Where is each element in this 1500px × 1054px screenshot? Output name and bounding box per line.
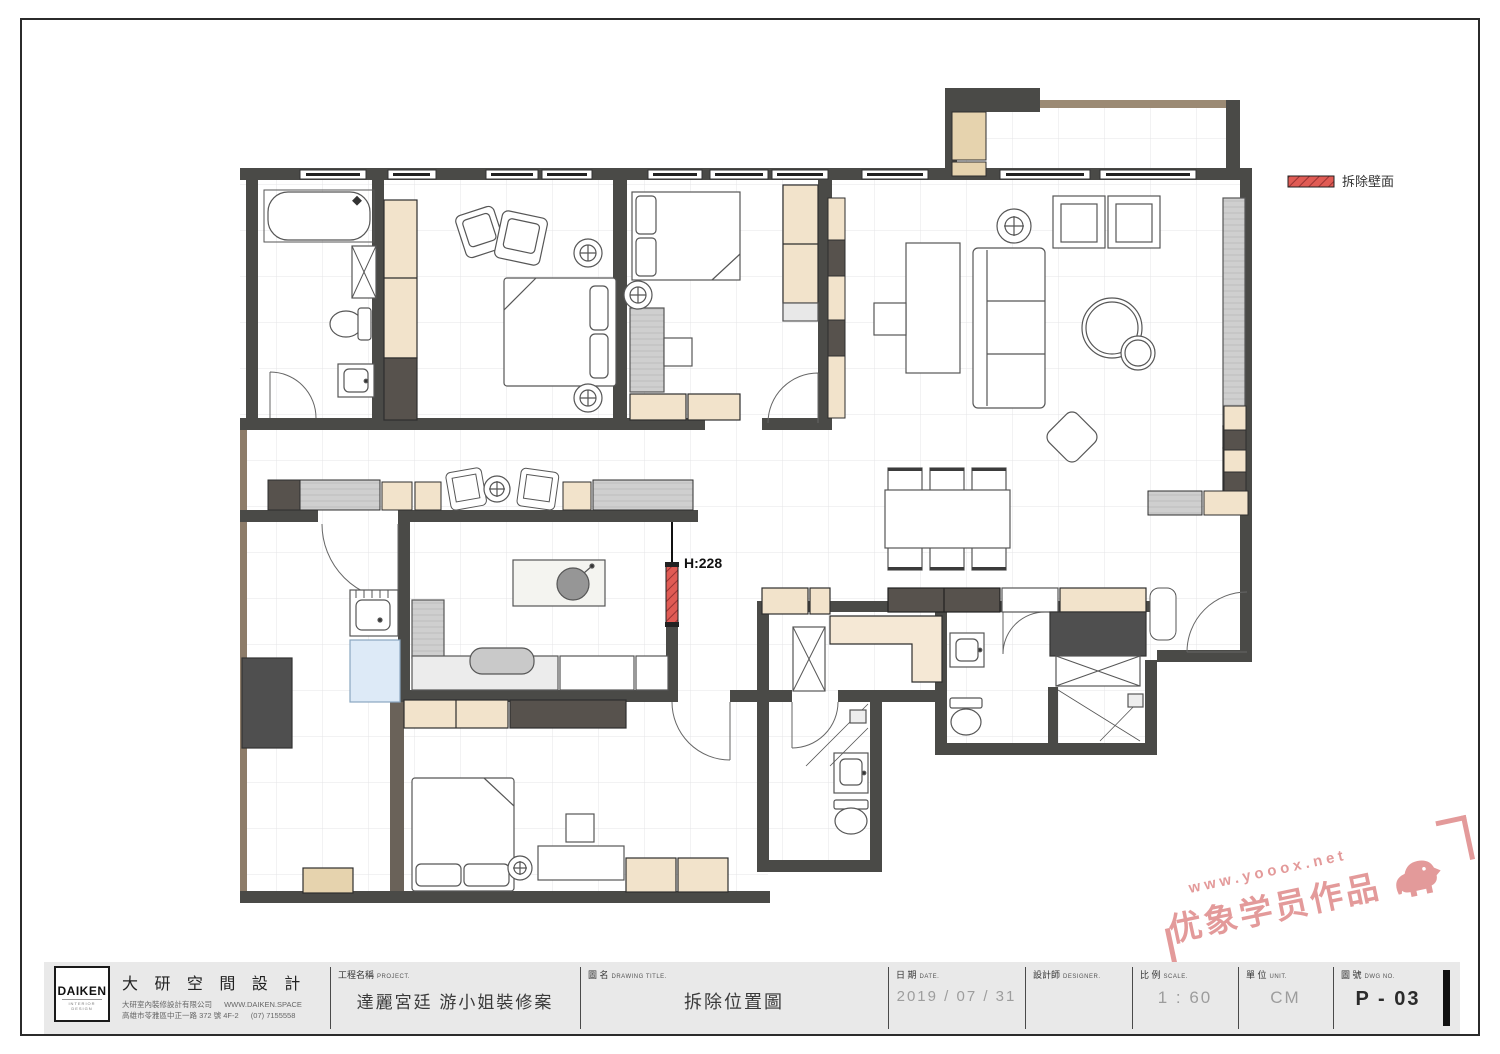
company-logo: DAIKEN INTERIOR DESIGN [54, 966, 110, 1022]
field-scale: 比 例SCALE. 1 : 60 [1132, 962, 1238, 1034]
height-note: H:228 [684, 555, 722, 571]
title-block: DAIKEN INTERIOR DESIGN 大 研 空 間 設 計 大研室內裝… [44, 962, 1460, 1034]
titleblock-end-bar [1443, 970, 1450, 1026]
drawing-title: 拆除位置圖 [580, 988, 888, 1014]
legend-demolish-label: 拆除壁面 [1342, 174, 1394, 189]
field-unit-label: 單 位 [1246, 970, 1267, 980]
field-date: 日 期DATE. 2019 / 07 / 31 [888, 962, 1025, 1034]
balcony [952, 112, 986, 176]
field-title-label-en: DRAWING TITLE. [612, 974, 667, 980]
field-scale-label: 比 例 [1140, 970, 1161, 980]
field-designer: 設計師DESIGNER. [1025, 962, 1132, 1034]
field-project-label-en: PROJECT. [377, 974, 410, 980]
company-info: 大 研 空 間 設 計 大研室內裝修設計有限公司 WWW.DAIKEN.SPAC… [122, 970, 306, 1022]
floor-plan: H:228 [0, 0, 1500, 1054]
field-date-label-en: DATE. [920, 974, 940, 980]
field-unit: 單 位UNIT. CM [1238, 962, 1333, 1034]
hall-cabinet-column [828, 198, 845, 418]
logo-name: DAIKEN [56, 984, 108, 998]
windows [300, 170, 1196, 179]
company-line2: 高雄市苓雅區中正一路 372 號 4F-2 [122, 1011, 239, 1020]
logo-subtitle: INTERIOR DESIGN [62, 999, 102, 1011]
field-dwg-no: 圖 號DWG NO. P - 03 [1333, 962, 1443, 1034]
company-website: WWW.DAIKEN.SPACE [224, 999, 302, 1010]
legend: 拆除壁面 [1288, 174, 1394, 189]
company-name: 大 研 空 間 設 計 [122, 970, 306, 994]
field-title-label: 圖 名 [588, 970, 609, 980]
field-project: 工程名稱PROJECT. 達麗宮廷 游小姐裝修案 [330, 962, 580, 1034]
date-value: 2019 / 07 / 31 [888, 988, 1025, 1005]
field-designer-label-en: DESIGNER. [1063, 974, 1101, 980]
company-line1: 大研室內裝修設計有限公司 [122, 1000, 212, 1009]
field-project-label: 工程名稱 [338, 970, 374, 980]
field-scale-label-en: SCALE. [1164, 974, 1188, 980]
company-phone: (07) 7155558 [251, 1010, 296, 1021]
scale-value: 1 : 60 [1132, 988, 1238, 1008]
field-designer-label: 設計師 [1033, 970, 1060, 980]
company-details: 大研室內裝修設計有限公司 WWW.DAIKEN.SPACE 高雄市苓雅區中正一路… [122, 999, 306, 1022]
dwg-no-value: P - 03 [1333, 988, 1443, 1011]
project-name: 達麗宮廷 游小姐裝修案 [330, 988, 580, 1013]
field-date-label: 日 期 [896, 970, 917, 980]
field-dwg-label-en: DWG NO. [1365, 974, 1396, 980]
field-unit-label-en: UNIT. [1270, 974, 1288, 980]
field-drawing-title: 圖 名DRAWING TITLE. 拆除位置圖 [580, 962, 888, 1034]
legend-demolish-swatch [1288, 176, 1334, 187]
field-dwg-label: 圖 號 [1341, 970, 1362, 980]
unit-value: CM [1238, 988, 1333, 1008]
